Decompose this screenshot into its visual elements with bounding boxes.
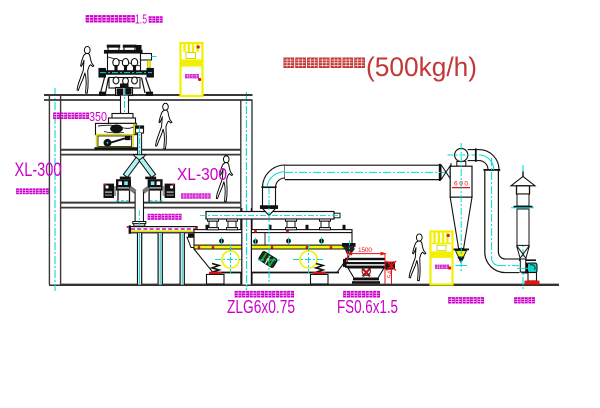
svg-text:XL-300: XL-300	[177, 164, 227, 184]
svg-text:548: 548	[387, 266, 394, 278]
svg-text:(500kg/h): (500kg/h)	[366, 52, 477, 82]
svg-text:1500: 1500	[358, 247, 372, 254]
svg-text:ZLG6x0.75: ZLG6x0.75	[227, 297, 295, 317]
svg-text:350: 350	[89, 110, 107, 124]
svg-text:1.5: 1.5	[135, 12, 147, 27]
svg-text:XL-300: XL-300	[15, 160, 62, 181]
svg-text:FS0.6x1.5: FS0.6x1.5	[337, 297, 398, 317]
